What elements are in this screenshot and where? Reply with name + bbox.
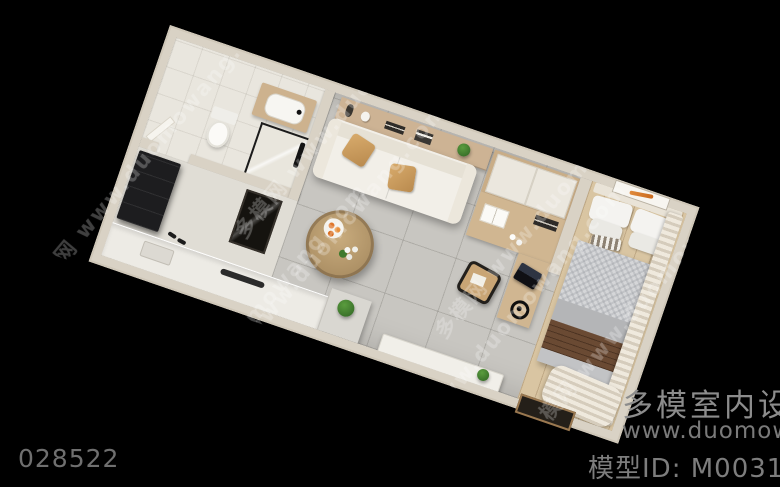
vase bbox=[344, 103, 355, 118]
shelf-plant bbox=[456, 142, 473, 159]
table-flowers bbox=[344, 246, 352, 254]
brand-url-text: www.duomowang bbox=[622, 418, 780, 444]
model-id-text: 模型ID: M0031383 bbox=[588, 448, 780, 485]
render-canvas: 多模网 www.duomowang.com 多模网 www.duomowang.… bbox=[0, 0, 780, 487]
feather-art bbox=[629, 190, 653, 199]
coffee-table bbox=[297, 201, 383, 287]
fruit-plate bbox=[321, 216, 346, 241]
apartment-floorplan bbox=[89, 25, 700, 444]
desk-chair bbox=[455, 259, 503, 306]
typewriter-decor bbox=[414, 129, 434, 145]
sofa-pillow bbox=[387, 163, 417, 193]
apartment-interior bbox=[101, 38, 686, 431]
magazine bbox=[470, 273, 487, 287]
book-stack bbox=[384, 121, 406, 135]
oranges bbox=[328, 222, 336, 230]
marble-bench bbox=[377, 333, 505, 394]
image-id-text: 028522 bbox=[18, 444, 119, 473]
bear-figurine bbox=[359, 110, 371, 122]
